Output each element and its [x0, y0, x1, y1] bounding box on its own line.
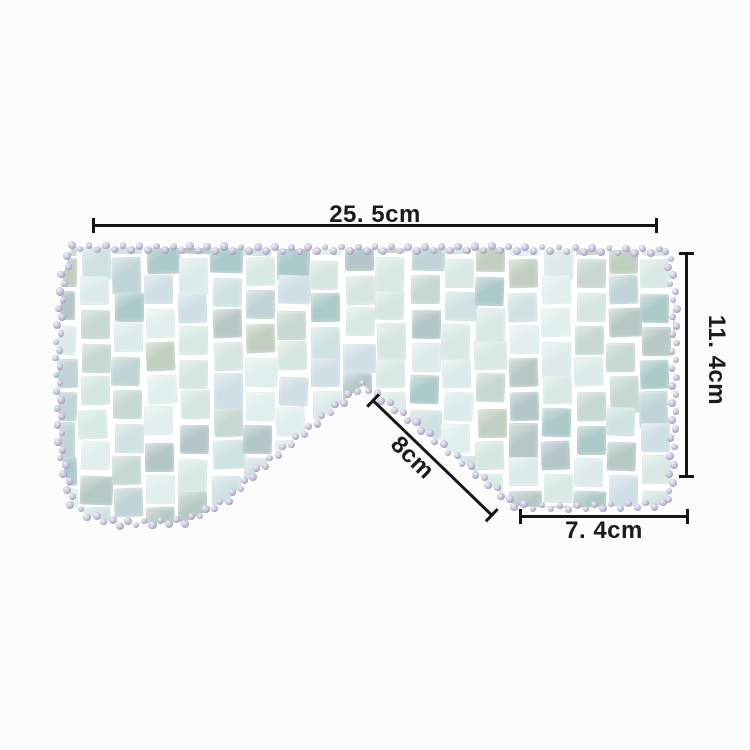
jade-tile — [178, 522, 207, 551]
jade-tile — [675, 241, 708, 270]
jade-tile — [144, 406, 173, 435]
jade-tile — [478, 409, 508, 439]
jade-tile — [377, 323, 407, 361]
jade-tile — [442, 358, 472, 388]
jade-tile — [609, 245, 639, 275]
jade-tile — [113, 225, 142, 254]
jade-tile — [145, 538, 175, 568]
jade-tile — [310, 491, 339, 528]
dimension-tick — [92, 218, 95, 233]
jade-tile — [111, 523, 141, 553]
jade-tile — [80, 441, 110, 471]
jade-tile — [642, 327, 671, 356]
jade-tile — [81, 310, 110, 339]
jade-tile — [279, 507, 309, 537]
jade-tile — [411, 275, 440, 304]
jade-tile — [474, 440, 504, 470]
jade-tile — [246, 257, 276, 287]
jade-tile — [375, 522, 404, 551]
dimension-tick — [686, 509, 689, 524]
jade-tile — [673, 277, 703, 307]
jade-tile — [574, 458, 604, 488]
jade-tile — [575, 326, 604, 355]
jade-tile — [642, 455, 671, 484]
jade-tile — [441, 423, 471, 453]
jade-tile — [639, 359, 669, 389]
dimension-tick — [519, 509, 522, 524]
jade-tile — [442, 224, 471, 253]
jade-tile — [246, 391, 275, 420]
jade-tile — [277, 311, 306, 340]
jade-tile — [310, 425, 339, 454]
jade-tile — [675, 441, 705, 471]
jade-tile — [543, 473, 573, 503]
jade-tile — [213, 440, 247, 470]
jade-tile — [112, 455, 141, 484]
jade-tile — [344, 410, 373, 439]
jade-tile — [81, 507, 111, 537]
jade-tile-weave — [55, 240, 683, 536]
jade-tile — [213, 341, 243, 371]
dimension-label-right-height: 11. 4cm — [704, 315, 728, 405]
jade-tile — [211, 538, 245, 568]
jade-tile — [47, 456, 77, 486]
jade-tile — [243, 458, 273, 488]
jade-tile — [411, 310, 441, 340]
jade-tile — [114, 323, 144, 353]
dimension-label-top-width: 25. 5cm — [329, 203, 421, 227]
jade-tile — [277, 274, 311, 304]
jade-tile — [606, 406, 636, 436]
jade-tile — [177, 491, 206, 528]
jade-tile — [543, 540, 573, 570]
jade-tile — [178, 224, 212, 254]
jade-tile — [48, 359, 78, 389]
jade-tile — [412, 343, 441, 372]
dimension-tick — [485, 508, 499, 522]
jade-tile — [342, 474, 372, 504]
dimension-tick — [655, 218, 658, 233]
jade-tile — [345, 276, 375, 306]
jade-tile — [577, 392, 606, 421]
jade-tile — [179, 360, 209, 390]
dimension-tick — [679, 475, 694, 478]
jade-tile — [145, 341, 175, 371]
jade-tile — [476, 308, 506, 346]
jade-tile — [409, 375, 439, 405]
jade-tile — [111, 257, 141, 295]
jade-tile — [243, 424, 273, 454]
jade-tile — [345, 307, 375, 337]
jade-tile — [311, 292, 340, 321]
jade-tile — [145, 309, 175, 339]
jade-tile — [511, 523, 540, 552]
jade-tile — [212, 277, 242, 307]
jade-tile — [80, 540, 109, 569]
jade-tile — [276, 406, 306, 436]
jade-tile — [540, 441, 570, 471]
jade-tile — [275, 439, 305, 477]
jade-tile — [606, 540, 636, 570]
jade-tile — [146, 507, 176, 537]
jade-tile — [408, 409, 442, 439]
jade-tile — [641, 522, 671, 552]
jade-tile — [246, 522, 275, 551]
jade-tile — [441, 323, 471, 361]
jade-tile — [672, 538, 702, 568]
jade-tile — [541, 341, 571, 379]
jade-tile — [443, 392, 473, 422]
jade-tile — [245, 324, 275, 354]
jade-tile — [278, 539, 308, 569]
jade-tile — [48, 258, 77, 287]
jade-tile — [147, 375, 177, 405]
jade-tile — [179, 326, 208, 355]
jade-tile — [111, 357, 141, 387]
jade-tile — [444, 291, 478, 321]
jade-tile — [47, 325, 77, 355]
jade-tile — [377, 489, 406, 518]
jade-tile — [576, 426, 605, 455]
jade-tile — [313, 390, 342, 419]
jade-tile — [212, 309, 242, 339]
jade-tile — [574, 357, 604, 387]
jade-tile — [243, 490, 273, 528]
jade-tile — [46, 291, 75, 320]
jade-tile — [475, 277, 505, 307]
jade-tile — [48, 227, 77, 256]
dimension-label-nose-bridge: 8cm — [386, 432, 438, 484]
jade-tile — [443, 524, 473, 554]
jade-tile — [45, 422, 74, 459]
jade-tile — [510, 325, 539, 354]
dimension-label-bottom-width: 7. 4cm — [565, 519, 643, 543]
jade-tile — [606, 343, 635, 372]
jade-tile — [213, 373, 242, 410]
jade-tile — [542, 374, 572, 404]
dimension-tick — [366, 393, 380, 407]
jade-tile — [212, 476, 241, 505]
jade-tile — [213, 408, 243, 438]
jade-tile — [475, 373, 505, 403]
jade-tile — [576, 259, 606, 289]
jade-tile — [376, 358, 405, 387]
jade-tile — [509, 422, 538, 459]
jade-tile — [144, 275, 173, 304]
jade-tile — [542, 274, 572, 304]
jade-tile — [178, 258, 208, 296]
jade-tile — [541, 307, 571, 337]
jade-tile — [675, 508, 704, 537]
jade-tile — [640, 422, 669, 451]
jade-tile — [80, 475, 114, 505]
jade-tile — [376, 224, 405, 253]
jade-tile — [309, 260, 339, 290]
jade-tile — [345, 242, 374, 271]
jade-tile — [80, 376, 110, 406]
jade-tile — [576, 293, 606, 323]
jade-tile — [576, 226, 605, 255]
jade-tile — [47, 391, 77, 421]
jade-tile — [508, 358, 538, 388]
jade-tile — [78, 409, 108, 439]
jade-tile — [177, 293, 207, 323]
jade-tile — [411, 241, 445, 271]
dimension-tick — [679, 252, 694, 255]
jade-tile — [509, 457, 538, 486]
jade-tile — [509, 259, 539, 289]
jade-tile — [342, 541, 372, 571]
jade-tile — [445, 259, 474, 288]
jade-tile — [541, 408, 571, 438]
jade-tile — [313, 522, 342, 551]
dimension-line-right-height — [685, 252, 688, 478]
jade-tile — [474, 340, 508, 370]
jade-tile — [311, 357, 340, 386]
jade-tile — [675, 342, 704, 371]
jade-tile — [507, 292, 537, 322]
jade-tile — [375, 290, 405, 320]
jade-tile — [177, 459, 207, 497]
jade-tile — [113, 390, 142, 419]
jade-tile — [145, 443, 174, 472]
jade-tile — [343, 344, 376, 373]
jade-tile — [312, 457, 342, 487]
jade-tile — [344, 440, 373, 469]
jade-tile — [312, 226, 342, 256]
jade-tile — [278, 341, 308, 371]
jade-tile — [244, 357, 278, 387]
jade-tile — [242, 226, 272, 256]
jade-tile — [146, 475, 175, 504]
jade-tile — [639, 294, 668, 323]
jade-tile — [478, 541, 507, 570]
jade-eye-mask — [55, 240, 683, 536]
jade-tile — [278, 376, 308, 406]
jade-tile — [608, 307, 642, 337]
jade-tile — [375, 257, 405, 295]
jade-tile — [146, 244, 180, 274]
jade-tile — [180, 425, 209, 454]
jade-tile — [608, 275, 638, 305]
jade-tile — [607, 441, 637, 471]
jade-tile — [113, 488, 143, 518]
jade-tile — [444, 455, 477, 484]
jade-tile — [114, 293, 143, 322]
jade-tile — [115, 424, 144, 453]
jade-tile — [410, 506, 439, 535]
jade-tile — [246, 290, 275, 319]
jade-tile — [80, 276, 109, 305]
jade-tile — [476, 243, 505, 272]
jade-tile — [342, 373, 371, 402]
jade-tile — [210, 243, 244, 273]
jade-tile — [47, 521, 81, 551]
jade-tile — [510, 227, 540, 257]
jade-tile — [640, 258, 670, 288]
jade-tile — [49, 488, 79, 518]
jade-tile — [278, 474, 307, 503]
jade-tile — [82, 343, 112, 373]
jade-tile — [213, 505, 242, 534]
jade-tile — [180, 390, 210, 420]
jade-tile — [510, 391, 540, 421]
jade-tile — [408, 541, 438, 579]
jade-tile — [342, 506, 371, 535]
product-image: 25. 5cm 11. 4cm 8cm 7. 4cm — [0, 0, 750, 750]
